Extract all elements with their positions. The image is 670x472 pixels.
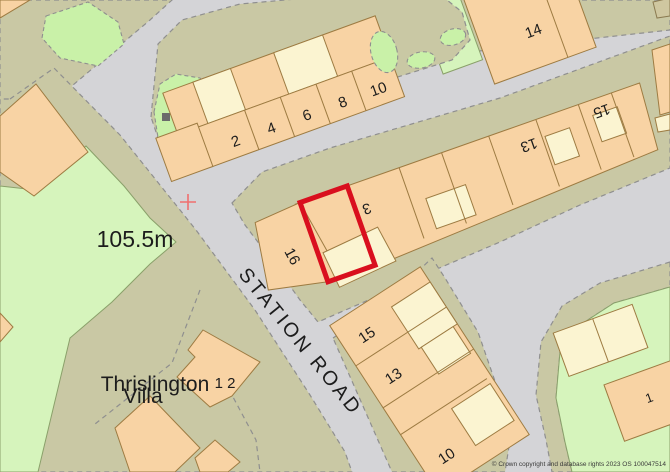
house-number-12: 1 2 — [215, 375, 236, 392]
marker-square — [162, 113, 170, 121]
os-map-extract: 2 4 6 8 10 14 3 13 15 16 1 — [0, 0, 670, 472]
spot-height-label: 105.5m — [97, 226, 174, 252]
copyright-notice: © Crown copyright and database rights 20… — [492, 460, 667, 468]
map-canvas: 2 4 6 8 10 14 3 13 15 16 1 — [0, 0, 670, 472]
villa-name-line2: Villa — [123, 385, 163, 408]
